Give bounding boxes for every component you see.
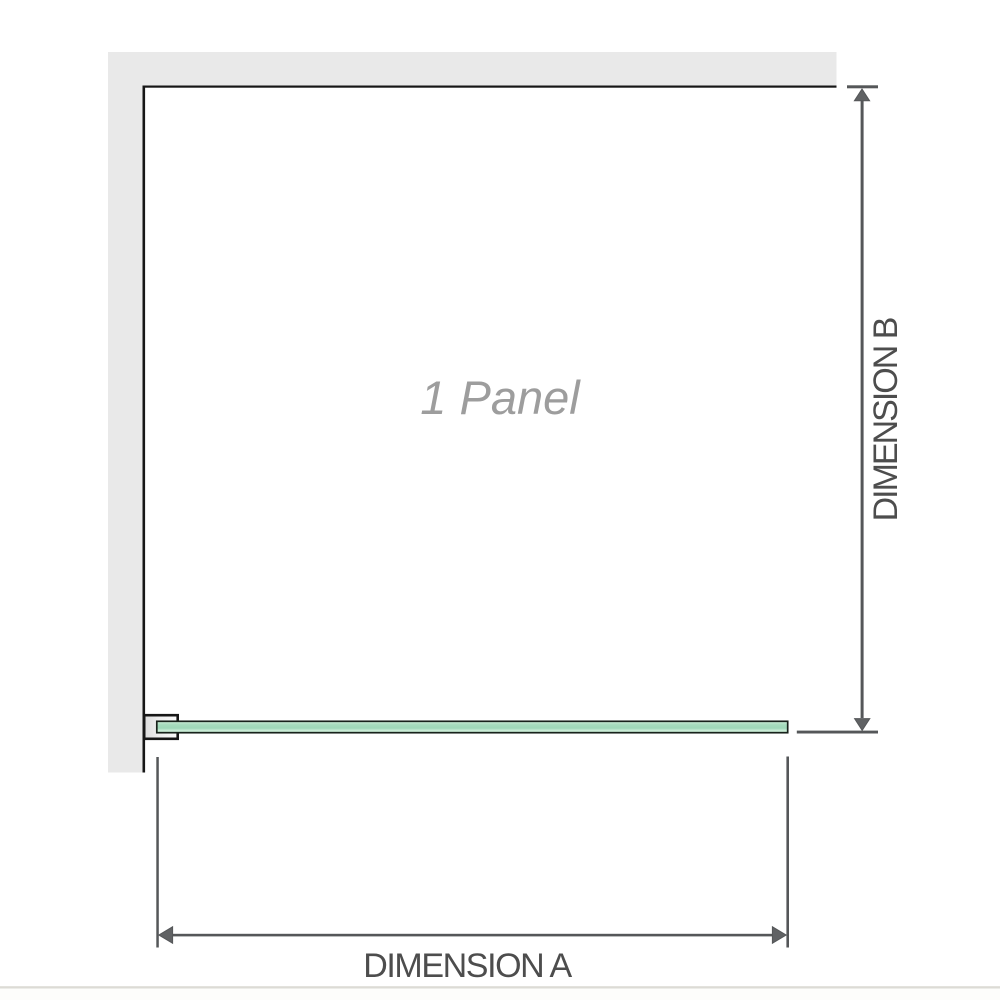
svg-text:DIMENSION A: DIMENSION A: [363, 947, 572, 985]
svg-text:1 Panel: 1 Panel: [420, 371, 581, 424]
svg-text:DIMENSION B: DIMENSION B: [867, 318, 905, 521]
